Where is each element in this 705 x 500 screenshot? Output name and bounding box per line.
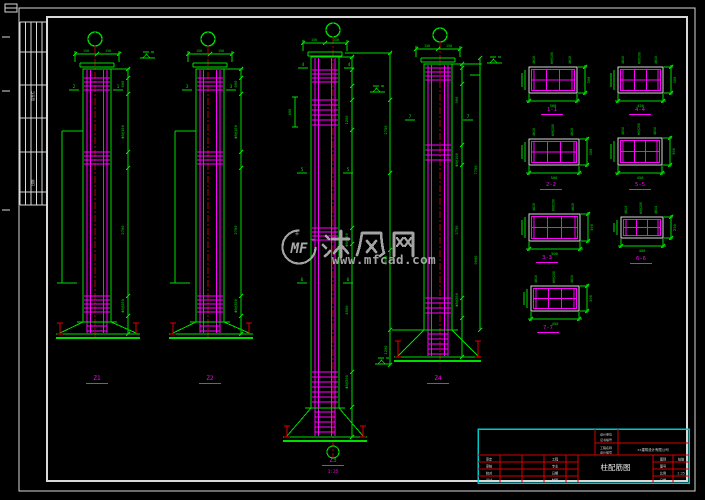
section-cut-mark: 4	[302, 62, 305, 68]
rebar-callout: Φ8@200	[552, 199, 556, 211]
title-block: 设计单位证书编号工程名称设计编号××建筑设计有限公司审定工程图别结施审核专业图号…	[478, 429, 689, 483]
title-block-cell: 日期	[552, 471, 558, 476]
dim-text: Φ8@200	[454, 292, 459, 306]
rebar-callout: 4Φ18	[571, 203, 575, 211]
rebar-callout: 4Φ16	[653, 127, 657, 135]
title-block-cell: 制图	[552, 478, 558, 483]
section-label: 7-7	[543, 325, 553, 331]
dim-text: 150	[333, 38, 339, 42]
rebar-callout: 4Φ18	[532, 203, 536, 211]
section-label: 3-3	[542, 255, 552, 261]
dim-text: 150	[311, 38, 317, 42]
section-cut-mark: 5	[301, 167, 304, 173]
dim-text: 2750	[383, 125, 388, 135]
rebar-callout: 4Φ18	[570, 128, 574, 136]
section-cut-mark: 6	[301, 277, 304, 283]
dim-text: 250	[672, 223, 677, 231]
dim-text: 300	[586, 76, 591, 84]
dim-text: 9000	[473, 255, 478, 265]
title-block-cell: 日期	[660, 478, 666, 483]
dim-text: Φ8@200	[344, 374, 349, 388]
title-block-cell: 工程名称	[600, 445, 612, 450]
rebar-callout: 4Φ16	[654, 56, 658, 64]
dim-text: 2700	[233, 225, 238, 235]
rebar-callout: 4Φ16	[621, 56, 625, 64]
section-cut-mark: 7	[467, 114, 470, 120]
rebar-callout: Φ8@200	[637, 123, 641, 135]
title-block-cell: 比例	[660, 471, 666, 476]
watermark-url: www.mfcad.com	[332, 252, 436, 267]
rebar-callout: Φ8@200	[639, 202, 643, 214]
column-elevation-1: 150150Z121600Φ8@1002700Φ8@200	[56, 32, 140, 384]
cad-sheet: 会签栏日期150150Z121600Φ8@1002700Φ8@200150150…	[0, 0, 705, 500]
section-cut-mark: 5	[347, 167, 350, 173]
title-block-cell: 图号	[660, 464, 666, 469]
dim-text: 400	[639, 248, 647, 253]
dim-text: 600	[288, 109, 292, 115]
dim-text: 300	[672, 76, 677, 84]
column-label: Z1	[93, 375, 101, 382]
section-cut-mark: 6	[347, 277, 350, 283]
column-label: Z2	[206, 375, 214, 382]
watermark: MF++沐风网www.mfcad.com	[283, 230, 437, 267]
strip-label: 会签栏	[30, 90, 35, 101]
dim-text: 500	[551, 175, 559, 180]
dim-text: 300	[588, 148, 593, 156]
cross-section-1: 5003004Φ18Φ8@1004Φ181-1	[522, 52, 591, 114]
section-label: 2-2	[546, 182, 556, 188]
title-block-cell: 设计编号	[600, 450, 612, 455]
column-elevation-2: 150150Z233600Φ8@1002700Φ8@200	[169, 32, 253, 384]
dim-text: 450	[637, 175, 645, 180]
section-label: 1-1	[547, 107, 557, 113]
section-label: 4-4	[635, 107, 646, 113]
section-cut-mark: 3	[186, 84, 189, 90]
company-name: ××建筑设计有限公司	[637, 447, 668, 452]
drawing-title: 柱配筋图	[601, 462, 631, 472]
title-block-cell: 审核	[486, 464, 493, 469]
cross-section-6: 4002504Φ14Φ8@2004Φ146-6	[614, 202, 677, 263]
title-block-cell: 结施	[678, 457, 685, 462]
dim-text: 500	[551, 251, 559, 256]
section-cut-mark: 2	[73, 84, 76, 90]
title-block-cell: 设计单位	[600, 432, 612, 437]
cad-drawing-canvas: 会签栏日期150150Z121600Φ8@1002700Φ8@200150150…	[0, 0, 705, 500]
rebar-callout: Φ8@200	[551, 124, 555, 136]
dim-text: 4500	[344, 305, 349, 315]
strip-label: 日期	[30, 179, 35, 186]
title-block-cell: 图别	[660, 457, 666, 462]
column-label: Z4	[434, 375, 442, 382]
dim-text: 1200	[383, 345, 388, 355]
dim-text: 900	[454, 96, 459, 104]
rebar-callout: Φ8@100	[638, 52, 642, 64]
dim-text: 300	[589, 223, 594, 231]
title-block-cell: 审定	[486, 457, 493, 462]
watermark-logo-text: MF	[290, 241, 308, 257]
signature-strip: 会签栏日期	[20, 22, 47, 205]
cross-section-7: 4503004Φ16Φ8@2004Φ167-7	[524, 271, 593, 332]
dim-text: 150	[424, 44, 430, 48]
title-block-cell: 设计	[486, 478, 493, 483]
dim-text: Φ8@100	[454, 152, 459, 166]
dim-text: 150	[218, 49, 224, 53]
dim-text: Φ8@200	[120, 298, 125, 312]
title-block-cell: 证书编号	[600, 437, 612, 442]
dim-text: 600	[233, 80, 238, 88]
dim-text: Φ8@100	[120, 124, 125, 138]
rebar-callout: 4Φ16	[534, 275, 538, 283]
watermark-plus-icon: +	[311, 237, 315, 244]
title-block-cell: 工程	[552, 457, 559, 462]
dim-text: 2700	[120, 225, 125, 235]
rebar-callout: 4Φ18	[532, 128, 536, 136]
title-block-cell: 校对	[486, 471, 493, 476]
title-block-cell: 1:25	[677, 472, 685, 476]
rebar-callout: 4Φ14	[654, 206, 658, 214]
rebar-callout: 4Φ18	[568, 56, 572, 64]
section-label: 5-5	[635, 182, 645, 188]
rebar-callout: 4Φ18	[532, 56, 536, 64]
rebar-callout: Φ8@100	[550, 52, 554, 64]
dim-text: 7750	[473, 165, 478, 175]
dim-text: 300	[671, 147, 676, 155]
section-cut-mark: 7	[409, 114, 412, 120]
rebar-callout: 4Φ16	[621, 127, 625, 135]
dim-text: 600	[120, 80, 125, 88]
title-block-cell: 专业	[552, 464, 558, 469]
dim-text: 1200	[344, 115, 349, 125]
scale-label: 1:25	[328, 469, 339, 475]
dim-text: 150	[105, 49, 111, 53]
rebar-callout: 4Φ16	[570, 275, 574, 283]
watermark-plus-icon: +	[295, 230, 299, 238]
section-label: 6-6	[636, 256, 646, 262]
cross-section-3: 5003004Φ18Φ8@2004Φ182-2	[522, 124, 593, 189]
cross-section-2: 4503004Φ16Φ8@1004Φ164-4	[611, 52, 677, 114]
dim-text: 150	[196, 49, 202, 53]
rebar-callout: 4Φ14	[624, 206, 628, 214]
rebar-callout: Φ8@200	[552, 271, 556, 283]
cross-section-4: 4503004Φ16Φ8@2004Φ165-5	[611, 123, 676, 189]
dim-text: 300	[588, 294, 593, 302]
dim-text: 150	[83, 49, 89, 53]
section-cut-mark: 4	[348, 62, 351, 68]
dim-text: 150	[446, 44, 452, 48]
cross-section-5: 5003004Φ18Φ8@2004Φ183-3	[522, 199, 594, 262]
dim-text: 2750	[454, 225, 459, 235]
dim-text: Φ8@100	[233, 124, 238, 138]
dim-text: Φ8@200	[233, 298, 238, 312]
